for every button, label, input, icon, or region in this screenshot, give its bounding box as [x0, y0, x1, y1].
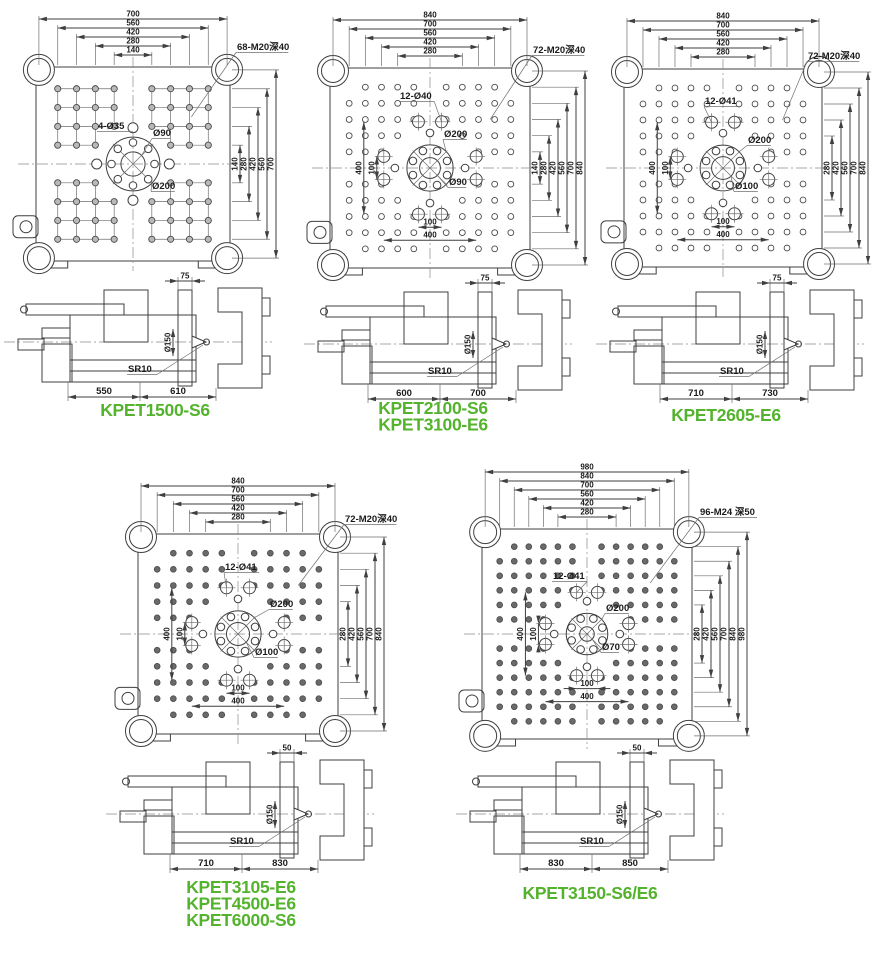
hole-pattern-callout: 12-Ø41 [553, 571, 585, 582]
bolt-hole [362, 117, 368, 123]
dim-label: 980 [738, 627, 747, 641]
bolt-hole [599, 718, 605, 724]
bolt-hole [300, 566, 306, 572]
dim-arrow [583, 71, 587, 79]
bolt-hole [205, 236, 211, 242]
dim-label: 420 [832, 161, 841, 175]
bolt-hole [267, 663, 273, 669]
bolt-hole [476, 246, 482, 252]
dim-label: 840 [580, 472, 594, 481]
bolt-hole [768, 213, 774, 219]
bolt-hole [784, 149, 790, 155]
dim-arrow [95, 44, 103, 48]
bolt-hole [671, 704, 677, 710]
dim-label: 280 [231, 513, 245, 522]
bolt-hole [642, 704, 648, 710]
thread-callout: 68-M20深40 [237, 41, 289, 53]
dim-arrow [655, 206, 659, 214]
ring-bolt-hole [726, 147, 734, 155]
dim-arrow [848, 104, 852, 112]
dim-arrow [181, 35, 189, 39]
bolt-hole [511, 646, 517, 652]
bolt-hole [92, 199, 98, 205]
bolt-hole [800, 133, 806, 139]
bolt-hole [511, 718, 517, 724]
pattern-hole-small [616, 630, 624, 638]
bolt-hole [411, 230, 417, 236]
ring-bolt-hole [702, 157, 710, 165]
dim-arrow [163, 44, 171, 48]
dim-label: 840 [716, 12, 730, 21]
machine-body-part [326, 306, 424, 317]
bolt-hole [346, 117, 352, 123]
bolt-hole [55, 199, 61, 205]
bolt-hole [186, 86, 192, 92]
bolt-hole [170, 712, 176, 718]
dim-arrow [365, 36, 373, 40]
bolt-hole [613, 718, 619, 724]
dim-arrow [736, 547, 740, 555]
machine-body-part [262, 298, 270, 316]
dim-arrow [724, 397, 732, 401]
bolt-hole [300, 647, 306, 653]
dim-arrow [485, 470, 493, 474]
dim-label: Ø150 [756, 334, 765, 354]
machine-body-part [364, 770, 372, 788]
dim-arrow [538, 176, 542, 184]
bolt-hole [784, 181, 790, 187]
bolt-hole [688, 85, 694, 91]
bolt-hole [752, 229, 758, 235]
bolt-hole [459, 246, 465, 252]
bolt-hole [205, 142, 211, 148]
bolt-hole [149, 104, 155, 110]
dim-arrow [529, 497, 537, 501]
ring-bolt-hole [227, 647, 235, 655]
pattern-hole-small [269, 630, 277, 638]
bolt-hole [346, 181, 352, 187]
bolt-hole [508, 230, 514, 236]
dim-arrow [170, 588, 174, 596]
dim-label: 400 [162, 627, 171, 641]
dim-label: 700 [580, 481, 594, 490]
bolt-hole [187, 696, 193, 702]
bolt-hole [168, 217, 174, 223]
dim-label: 50 [633, 744, 642, 753]
dim-arrow [77, 35, 85, 39]
bolt-hole [657, 587, 663, 593]
dim-label: 700 [267, 157, 276, 171]
bolt-hole [168, 236, 174, 242]
bolt-hole [672, 101, 678, 107]
dim-arrow [382, 537, 386, 545]
bolt-hole [540, 544, 546, 550]
bolt-hole [55, 86, 61, 92]
bolt-hole [492, 117, 498, 123]
bolt-hole [284, 712, 290, 718]
dim-label: Ø150 [616, 804, 625, 824]
dim-arrow [811, 19, 819, 23]
lug-hole [122, 692, 134, 704]
bolt-hole [476, 230, 482, 236]
bolt-hole [92, 217, 98, 223]
machine-body-part [364, 828, 372, 846]
bolt-hole [92, 86, 98, 92]
bolt-hole [526, 558, 532, 564]
thread-callout: 72-M20深40 [808, 50, 860, 62]
thread-callout: 96-M24 深50 [700, 506, 755, 518]
dim-arrow [346, 658, 350, 666]
circle-callout: Ø100 [735, 181, 758, 192]
bolt-hole [640, 181, 646, 187]
dim-label: 560 [716, 30, 730, 39]
bolt-hole [149, 86, 155, 92]
dim-arrow [637, 497, 645, 501]
bolt-hole [642, 602, 648, 608]
pattern-hole-small [583, 597, 591, 605]
bolt-hole [752, 213, 758, 219]
dim-label: 50 [283, 744, 292, 753]
dim-label: 850 [622, 858, 638, 869]
dim-label: Ø150 [164, 332, 173, 352]
bolt-hole [73, 217, 79, 223]
dim-arrow [866, 72, 870, 80]
dim-label: 700 [366, 627, 375, 641]
bolt-hole [671, 617, 677, 623]
machine-side-view: 50Ø150SR10830850 [456, 744, 724, 874]
dim-label: Ø150 [464, 334, 473, 354]
dim-label: 830 [548, 858, 564, 869]
dim-label: 730 [762, 388, 778, 399]
tie-bar-hole [611, 249, 642, 280]
machine-body-part [562, 358, 570, 376]
bolt-hole [251, 712, 257, 718]
bolt-hole [205, 104, 211, 110]
bolt-hole [492, 181, 498, 187]
bolt-hole [640, 149, 646, 155]
dim-arrow [487, 36, 495, 40]
bolt-hole [671, 573, 677, 579]
bolt-hole [300, 663, 306, 669]
bolt-hole [316, 663, 322, 669]
bolt-hole [476, 133, 482, 139]
ring-bolt-hole [712, 181, 720, 189]
bolt-hole [251, 550, 257, 556]
bolt-hole [688, 197, 694, 203]
bolt-hole [186, 217, 192, 223]
bolt-hole [642, 689, 648, 695]
bolt-hole [657, 544, 663, 550]
ring-bolt-hole [419, 147, 427, 155]
dim-arrow [700, 605, 704, 613]
bolt-hole [219, 712, 225, 718]
dim-label: 560 [231, 495, 245, 504]
dim-arrow [58, 26, 66, 30]
machine-body-part [26, 304, 124, 315]
bolt-hole [73, 142, 79, 148]
bolt-hole [640, 197, 646, 203]
machine-body-part [144, 816, 174, 854]
bolt-hole [784, 213, 790, 219]
circle-callout: Ø200 [270, 599, 293, 610]
dim-arrow [265, 231, 269, 239]
machine-body-part [120, 811, 146, 822]
hole-pattern-callout: 4-Ø35 [98, 121, 125, 132]
bolt-hole [219, 566, 225, 572]
bolt-hole [784, 245, 790, 251]
dim-label: 560 [841, 161, 850, 175]
dim-arrow [547, 192, 551, 200]
ring-bolt-hole [736, 171, 744, 179]
ring-bolt-hole [114, 175, 122, 183]
dim-arrow [700, 655, 704, 663]
model-name: KPET6000-S6 [186, 910, 296, 930]
bolt-hole [300, 583, 306, 589]
bolt-hole [800, 181, 806, 187]
bolt-hole [526, 704, 532, 710]
dim-label: 75 [481, 274, 490, 283]
dim-arrow [157, 493, 165, 497]
ring-bolt-hole [702, 171, 710, 179]
dim-arrow [538, 152, 542, 160]
ring-bolt-hole [251, 637, 259, 645]
ring-bolt-hole [151, 160, 159, 168]
ring-bolt-hole [599, 624, 607, 632]
dim-arrow [800, 397, 808, 401]
ring-bolt-hole [108, 160, 116, 168]
bolt-hole [570, 718, 576, 724]
bolt-hole [203, 550, 209, 556]
bolt-hole [540, 704, 546, 710]
dim-label: 420 [549, 161, 558, 175]
bolt-hole [784, 197, 790, 203]
machine-body-part [478, 292, 492, 388]
bolt-hole [497, 660, 503, 666]
ring-bolt-hole [409, 157, 417, 165]
bolt-hole [497, 617, 503, 623]
bolt-hole [492, 100, 498, 106]
platen-drawing-sheet: 70056042028014014028042056070068-M20深404… [0, 0, 880, 960]
platen-front-view: 8407005604202801402804205607008404001001… [307, 11, 588, 281]
bolt-hole [555, 587, 561, 593]
bolt-hole [187, 550, 193, 556]
dim-arrow [247, 194, 251, 202]
dim-arrow [173, 502, 181, 506]
pattern-hole [128, 123, 138, 133]
bolt-hole [459, 117, 465, 123]
bolt-hole [362, 100, 368, 106]
circle-callout: Ø70 [602, 642, 620, 653]
dim-arrow [364, 691, 368, 699]
bolt-hole [555, 660, 561, 666]
bolt-hole [736, 101, 742, 107]
bolt-hole [284, 583, 290, 589]
bolt-hole [92, 180, 98, 186]
bolt-hole [219, 550, 225, 556]
clamp-unit [670, 760, 714, 860]
dim-arrow [779, 37, 787, 41]
dim-label: 100 [580, 679, 594, 688]
bolt-hole [656, 229, 662, 235]
dim-label: 420 [716, 39, 730, 48]
bolt-hole [395, 230, 401, 236]
bolt-hole [154, 583, 160, 589]
bolt-hole [540, 573, 546, 579]
bolt-hole [784, 85, 790, 91]
bolt-hole [497, 602, 503, 608]
dim-arrow [660, 867, 668, 871]
machine-body-part [206, 762, 250, 814]
bolt-hole [599, 558, 605, 564]
dim-arrow [523, 668, 527, 676]
ring-bolt-hole [433, 181, 441, 189]
dim-label: 420 [702, 627, 711, 641]
dim-arrow [736, 713, 740, 721]
bolt-hole [628, 660, 634, 666]
bolt-hole [476, 84, 482, 90]
bolt-hole [657, 660, 663, 666]
dim-arrow [514, 488, 522, 492]
bolt-hole [55, 142, 61, 148]
bolt-hole [640, 213, 646, 219]
sprue-radius-callout: SR10 [128, 364, 152, 375]
dim-label: 280 [240, 157, 249, 171]
sprue-radius-callout: SR10 [580, 836, 604, 847]
dim-arrow [584, 867, 592, 871]
bolt-hole [672, 229, 678, 235]
machine-body-part [18, 339, 44, 350]
bolt-hole [613, 573, 619, 579]
bolt-hole [55, 104, 61, 110]
bolt-hole [540, 587, 546, 593]
bolt-hole [379, 230, 385, 236]
dim-arrow [141, 484, 149, 488]
bolt-hole [187, 663, 193, 669]
bolt-hole [508, 214, 514, 220]
dim-label: 610 [170, 386, 186, 397]
machine-body-part [144, 800, 172, 810]
bolt-hole [476, 117, 482, 123]
machine-body-part [42, 344, 72, 382]
bolt-hole [205, 86, 211, 92]
bolt-hole [800, 197, 806, 203]
bolt-hole [154, 566, 160, 572]
dim-arrow [520, 867, 528, 871]
dim-label: 840 [576, 161, 585, 175]
dim-arrow [362, 122, 366, 130]
bolt-hole [497, 704, 503, 710]
hole-pattern-callout: 12-Ø41 [225, 562, 257, 573]
bolt-hole [672, 197, 678, 203]
bolt-hole [628, 718, 634, 724]
bolt-hole [411, 84, 417, 90]
bolt-hole [379, 214, 385, 220]
dim-arrow [574, 241, 578, 249]
bolt-hole [379, 84, 385, 90]
bolt-hole [187, 599, 193, 605]
ring-bolt-hole [433, 147, 441, 155]
bolt-hole [170, 680, 176, 686]
bolt-hole [187, 583, 193, 589]
bolt-hole [497, 689, 503, 695]
bolt-hole [187, 712, 193, 718]
pattern-hole-small [754, 164, 762, 172]
dim-label: 140 [231, 157, 240, 171]
bolt-hole [443, 84, 449, 90]
platen-front-view: 70056042028014014028042056070068-M20深404… [13, 10, 289, 274]
bolt-hole [555, 704, 561, 710]
dim-label: 100 [661, 161, 670, 175]
bolt-hole [672, 133, 678, 139]
bolt-hole [346, 133, 352, 139]
dim-arrow [627, 19, 635, 23]
bolt-hole [168, 86, 174, 92]
machine-body-part [634, 330, 662, 340]
dim-label: 100 [423, 218, 437, 227]
pattern-hole [92, 159, 102, 169]
dim-arrow [238, 175, 242, 183]
bolt-hole [362, 197, 368, 203]
dim-arrow [857, 240, 861, 248]
bolt-hole [267, 696, 273, 702]
dim-label: 75 [773, 274, 782, 283]
bolt-hole [642, 675, 648, 681]
bolt-hole [672, 85, 678, 91]
bolt-hole [555, 675, 561, 681]
dim-label: 700 [716, 21, 730, 30]
bolt-hole [540, 718, 546, 724]
dim-arrow [373, 707, 377, 715]
dim-arrow [565, 225, 569, 233]
bolt-hole [379, 197, 385, 203]
bolt-hole [657, 558, 663, 564]
bolt-hole [656, 245, 662, 251]
bolt-hole [628, 573, 634, 579]
dim-arrow [262, 520, 270, 524]
leader-line [739, 146, 747, 152]
bolt-hole [768, 229, 774, 235]
dim-label: 280 [823, 161, 832, 175]
dim-label: 420 [249, 157, 258, 171]
bolt-hole [555, 558, 561, 564]
bolt-hole [570, 544, 576, 550]
bolt-hole [628, 704, 634, 710]
machine-body-part [478, 776, 576, 787]
dim-arrow [114, 53, 122, 57]
bolt-hole [657, 704, 663, 710]
dim-arrow [523, 592, 527, 600]
bolt-hole [316, 696, 322, 702]
bolt-hole [203, 712, 209, 718]
machine-diagram-3: 8407005604202802804205607008404001001004… [596, 12, 871, 426]
bolt-hole [511, 689, 517, 695]
dim-label: 280 [716, 48, 730, 57]
bolt-hole [511, 675, 517, 681]
bolt-hole [526, 660, 532, 666]
lug-hole [608, 226, 620, 238]
ring-bolt-hole [590, 615, 598, 623]
lifting-lug [601, 221, 626, 243]
bolt-hole [704, 229, 710, 235]
dim-arrow [545, 699, 553, 703]
bolt-hole [613, 660, 619, 666]
dim-arrow [727, 561, 731, 569]
lifting-lug [115, 687, 140, 709]
bolt-hole [497, 573, 503, 579]
hole-pattern-callout: 12-Ø40 [400, 91, 432, 102]
bolt-hole [526, 617, 532, 623]
ring-bolt-hole [577, 615, 585, 623]
